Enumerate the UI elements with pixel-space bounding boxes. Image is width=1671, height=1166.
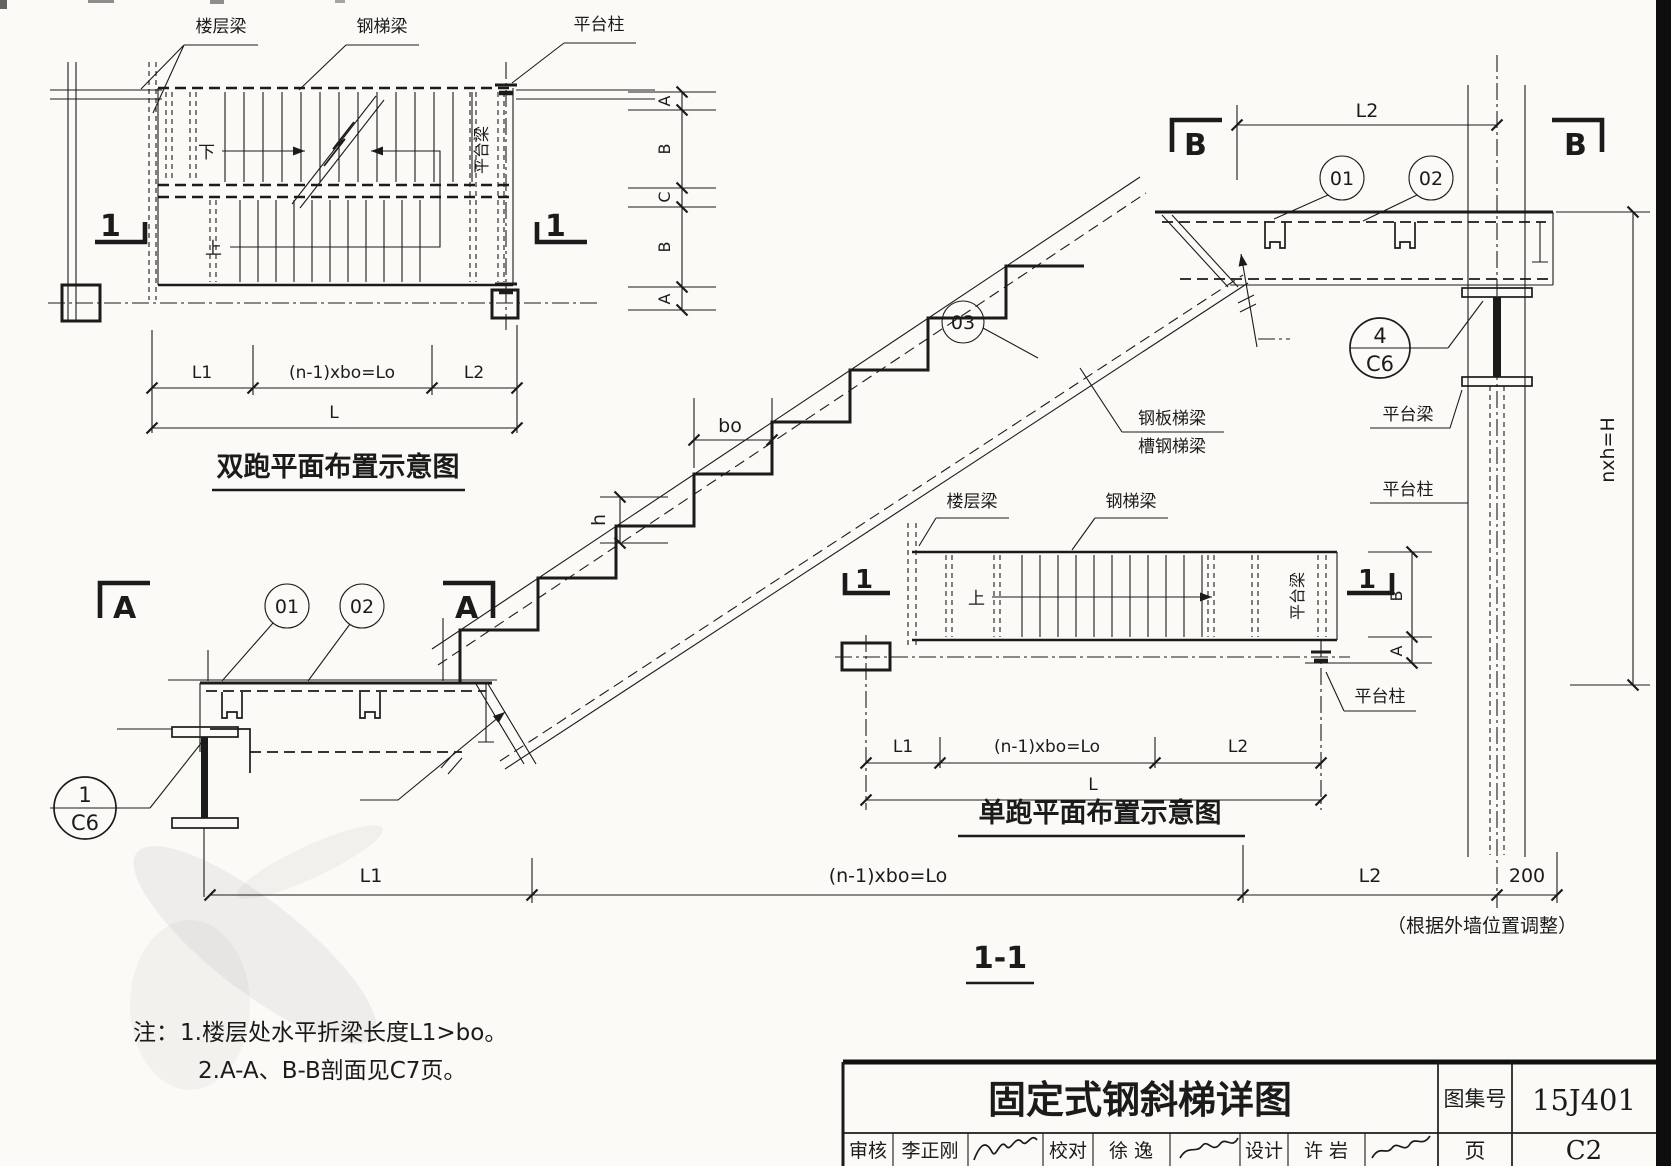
svg-text:B: B <box>1184 128 1207 163</box>
section-marker-1-left: 1 <box>95 209 145 244</box>
connection-leader-top <box>1238 254 1257 347</box>
section-marker-a-left: A <box>100 583 150 626</box>
svg-text:C6: C6 <box>1366 352 1394 376</box>
note-1: 1.楼层处水平折梁长度L1>bo。 <box>180 1020 507 1046</box>
svg-text:1: 1 <box>545 209 566 244</box>
platform-col-callout: 平台柱 <box>1370 480 1468 503</box>
page-number: C2 <box>1566 1136 1602 1166</box>
up-label: 上 <box>205 239 222 259</box>
svg-text:L2: L2 <box>1359 865 1382 887</box>
signature-icon <box>1180 1138 1238 1158</box>
platform-beam-label-2: 平台梁 <box>1288 572 1307 620</box>
svg-text:(n-1)xbo=Lo: (n-1)xbo=Lo <box>829 865 948 887</box>
svg-text:平台柱: 平台柱 <box>1355 687 1406 707</box>
page-label: 页 <box>1465 1139 1486 1163</box>
svg-text:A: A <box>1387 645 1406 656</box>
stair-beam-label: 钢梯梁 <box>357 17 408 37</box>
stringer-labels: 钢板梯梁 槽钢梯梁 <box>1080 368 1224 457</box>
svg-text:(n-1)xbo=Lo: (n-1)xbo=Lo <box>994 737 1100 757</box>
svg-text:bo: bo <box>718 415 742 437</box>
floor-beam-label-2: 楼层梁 <box>947 492 998 512</box>
svg-text:02: 02 <box>350 596 374 618</box>
section-bottom-dims: L1 (n-1)xbo=Lo L2 200 （根据外墙位置调整） <box>210 845 1577 937</box>
svg-text:A: A <box>655 95 674 106</box>
down-label: 下 <box>198 143 215 163</box>
single-run-bottom-dims: L1 (n-1)xbo=Lo L2 L <box>866 737 1321 800</box>
double-run-side-dims: A B C B A <box>628 92 716 310</box>
section-marker-1-right: 1 <box>537 209 587 244</box>
section-marker-1-right-2: 1 <box>1347 565 1392 595</box>
platform-beam-callout: 平台梁 <box>1370 390 1462 428</box>
section-title: 1-1 <box>973 941 1027 976</box>
svg-text:L1: L1 <box>360 865 383 887</box>
dim-l1: L1 <box>192 363 212 383</box>
svg-text:B: B <box>655 144 674 155</box>
design-name: 许 岩 <box>1304 1140 1348 1162</box>
callout-01-top: 01 <box>1274 156 1364 219</box>
svg-text:B: B <box>1387 591 1406 602</box>
up-label-2: 上 <box>968 589 985 609</box>
svg-text:1: 1 <box>78 783 91 807</box>
section-marker-1-left-2: 1 <box>845 565 890 595</box>
atlas-number: 15J401 <box>1532 1083 1636 1117</box>
svg-text:A: A <box>655 293 674 304</box>
review-name: 李正刚 <box>901 1140 958 1162</box>
dim-l2: L2 <box>464 363 484 383</box>
svg-text:L2: L2 <box>1356 100 1379 122</box>
note-2: 2.A-A、B-B剖面见C7页。 <box>198 1058 466 1084</box>
channel-beam-label: 槽钢梯梁 <box>1138 437 1206 457</box>
signature-icon <box>974 1138 1037 1160</box>
svg-text:B: B <box>1564 128 1587 163</box>
svg-text:平台梁: 平台梁 <box>1383 405 1434 425</box>
callout-02-lower: 02 <box>308 584 384 681</box>
drawing-canvas: 下 上 平台梁 楼层梁 钢梯梁 平台柱 1 1 A B <box>0 0 1671 1166</box>
title-block: 固定式钢斜梯详图 图集号 15J401 页 C2 审核 李正刚 校对 徐 逸 设… <box>843 1062 1671 1166</box>
section-marker-b-right: B <box>1552 120 1602 163</box>
platform-beam-label: 平台梁 <box>472 126 491 174</box>
svg-text:4: 4 <box>1373 324 1386 348</box>
svg-text:h: h <box>588 514 610 526</box>
svg-text:1: 1 <box>855 565 873 595</box>
svg-text:B: B <box>655 242 674 253</box>
svg-text:02: 02 <box>1419 168 1443 190</box>
callout-03: 03 <box>942 301 1038 358</box>
sheet-title: 固定式钢斜梯详图 <box>988 1078 1292 1122</box>
svg-text:03: 03 <box>951 312 975 334</box>
svg-text:C: C <box>655 191 674 202</box>
svg-text:01: 01 <box>275 596 299 618</box>
platform-col-callout-2: 平台柱 <box>1326 672 1416 711</box>
platform-col-label: 平台柱 <box>574 15 625 35</box>
dim-l: L <box>329 403 339 423</box>
check-label: 校对 <box>1049 1140 1087 1162</box>
floor-beam-label: 楼层梁 <box>196 17 247 37</box>
dim-height: nxh=H <box>1556 212 1650 685</box>
connection-leader-bottom <box>360 712 505 800</box>
review-label: 审核 <box>849 1140 887 1162</box>
dim-l2-top: L2 <box>1237 100 1497 180</box>
svg-text:L1: L1 <box>893 737 913 757</box>
svg-text:C6: C6 <box>71 811 99 835</box>
svg-text:A: A <box>455 591 479 626</box>
check-name: 徐 逸 <box>1109 1140 1153 1162</box>
svg-text:nxh=H: nxh=H <box>1597 417 1619 483</box>
double-run-bottom-dims: L1 (n-1)xbo=Lo L2 L <box>152 325 517 433</box>
section-marker-a-right: A <box>443 583 493 626</box>
detail-callout-1-c6: 1 C6 <box>50 737 206 839</box>
svg-text:L2: L2 <box>1228 737 1248 757</box>
signature-icon <box>1372 1136 1430 1158</box>
svg-text:1: 1 <box>1358 565 1376 595</box>
scan-artifacts <box>0 0 401 1090</box>
atlas-label: 图集号 <box>1444 1087 1507 1111</box>
notes-prefix: 注： <box>133 1020 179 1046</box>
stair-beam-label-2: 钢梯梁 <box>1106 492 1157 512</box>
svg-text:200: 200 <box>1509 865 1545 887</box>
single-run-plan: 平台梁 楼层梁 钢梯梁 上 1 1 B A 平台柱 <box>835 492 1432 836</box>
svg-text:1: 1 <box>100 209 121 244</box>
double-run-plan: 下 上 平台梁 楼层梁 钢梯梁 平台柱 1 1 A B <box>48 15 716 490</box>
detail-callout-4-c6: 4 C6 <box>1350 301 1483 378</box>
section-1-1: 1 C6 A A 01 02 <box>50 55 1650 983</box>
design-label: 设计 <box>1245 1140 1283 1162</box>
drawing-sheet: 下 上 平台梁 楼层梁 钢梯梁 平台柱 1 1 A B <box>0 0 1671 1166</box>
svg-text:平台柱: 平台柱 <box>1383 480 1434 500</box>
svg-text:A: A <box>113 591 137 626</box>
svg-text:01: 01 <box>1330 168 1354 190</box>
single-run-title: 单跑平面布置示意图 <box>979 797 1222 829</box>
callout-01-lower: 01 <box>222 584 309 681</box>
double-run-title: 双跑平面布置示意图 <box>217 451 460 483</box>
wall-note: （根据外墙位置调整） <box>1387 915 1577 937</box>
plate-beam-label: 钢板梯梁 <box>1138 409 1206 429</box>
dim-lo: (n-1)xbo=Lo <box>289 363 395 383</box>
svg-text:L: L <box>1088 775 1098 795</box>
section-marker-b-left: B <box>1172 120 1222 163</box>
sheet-edge <box>1656 0 1671 1166</box>
dim-bo: bo <box>694 398 772 468</box>
